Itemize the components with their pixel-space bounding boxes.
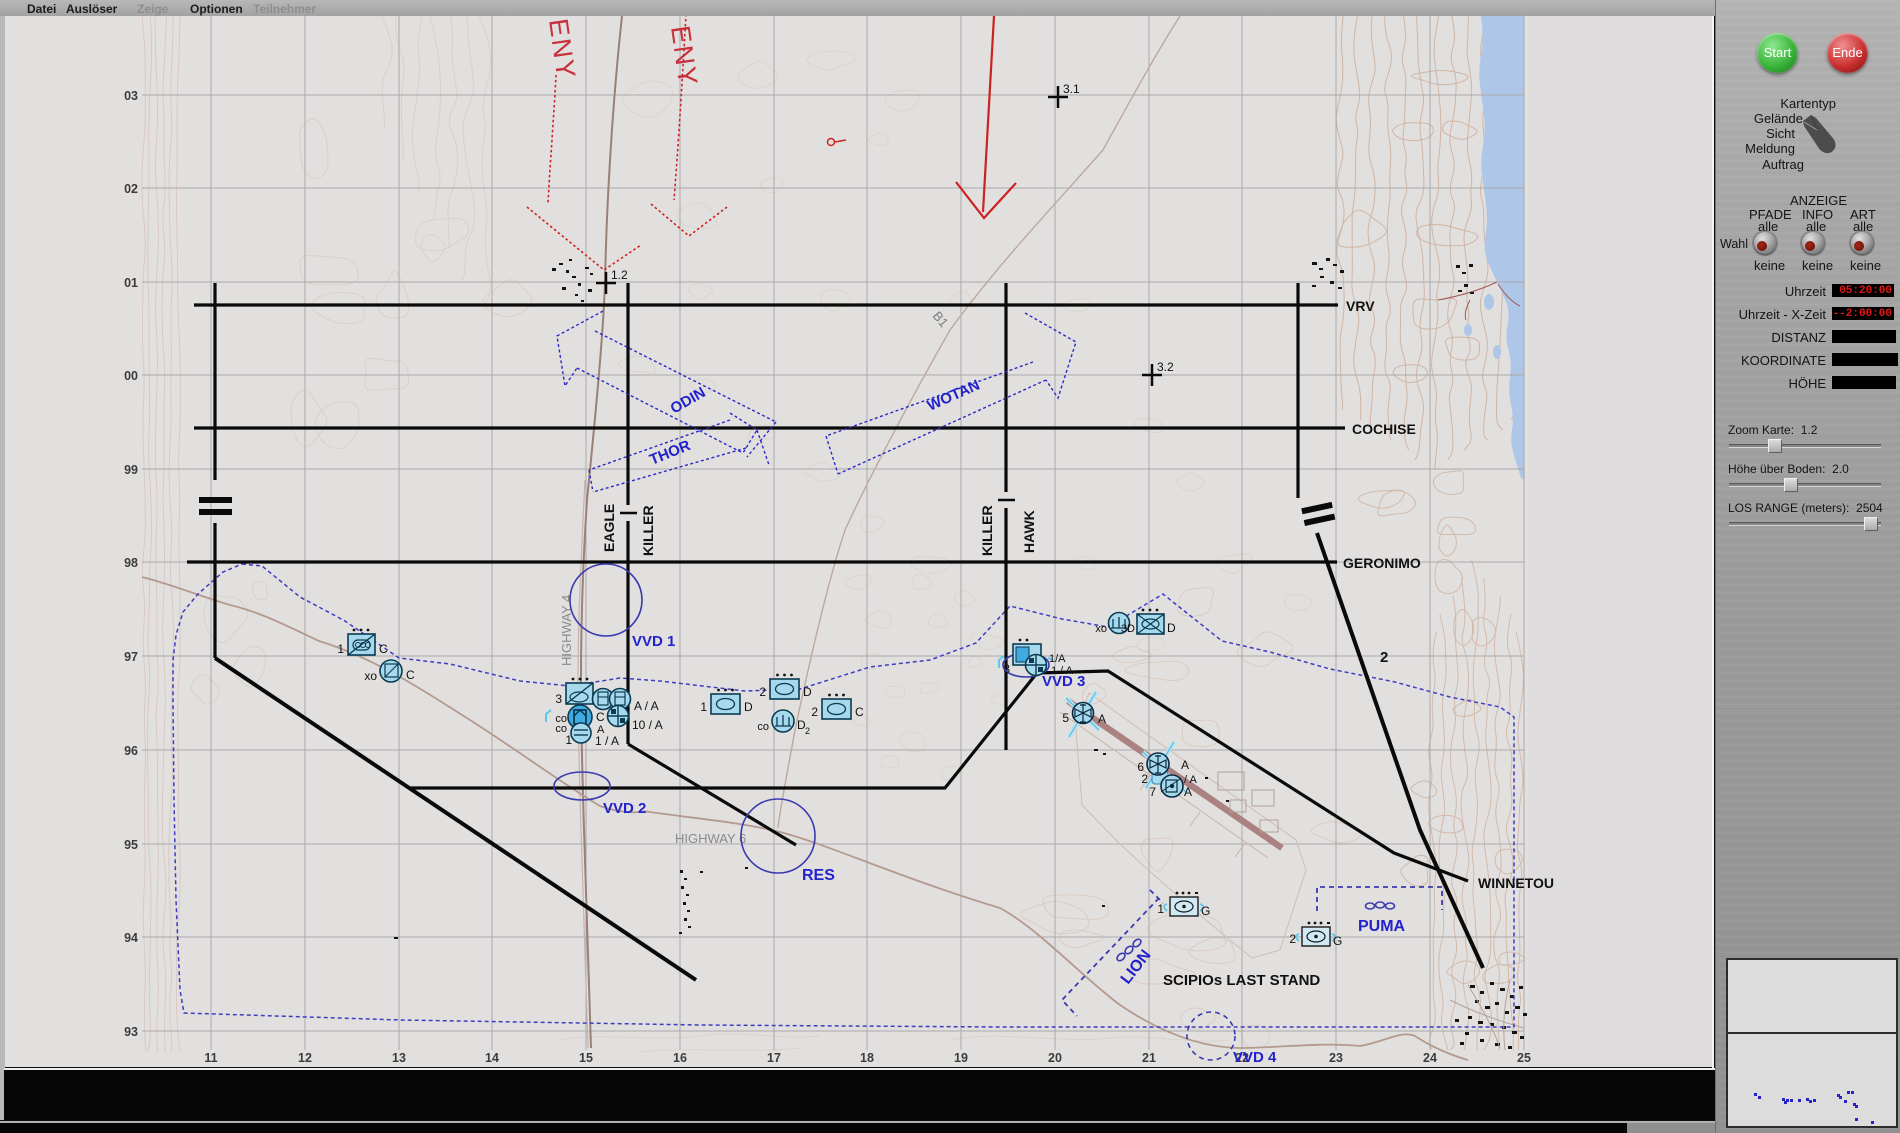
svg-text:2: 2	[805, 726, 810, 736]
svg-text:A: A	[1098, 712, 1106, 726]
svg-text:COCHISE: COCHISE	[1352, 421, 1416, 437]
svg-text:xo: xo	[364, 669, 377, 683]
svg-text:2: 2	[1141, 772, 1148, 786]
svg-text:C: C	[596, 710, 605, 724]
svg-text:25: 25	[1517, 1051, 1531, 1065]
svg-text:VVD 2: VVD 2	[603, 800, 646, 817]
svg-text:VRV: VRV	[1346, 298, 1375, 314]
svg-text:1: 1	[565, 733, 572, 747]
svg-text:3.2: 3.2	[1157, 360, 1174, 374]
svg-text:D: D	[1167, 621, 1176, 635]
svg-text:3: 3	[555, 692, 562, 706]
svg-text:A / A: A / A	[634, 699, 659, 713]
svg-text:3D: 3D	[1121, 623, 1135, 635]
svg-text:xo: xo	[1095, 623, 1107, 635]
svg-text:C: C	[406, 668, 415, 682]
svg-text:96: 96	[124, 744, 138, 758]
svg-text:98: 98	[124, 556, 138, 570]
svg-text:G: G	[1333, 934, 1342, 948]
svg-text:C: C	[379, 642, 388, 656]
svg-text:1: 1	[1157, 902, 1164, 916]
svg-text:15: 15	[579, 1051, 593, 1065]
svg-text:93: 93	[124, 1025, 138, 1039]
svg-text:1 / A: 1 / A	[1051, 665, 1074, 677]
svg-text:GERONIMO: GERONIMO	[1343, 555, 1421, 571]
svg-text:G: G	[1201, 904, 1210, 918]
svg-text:12: 12	[298, 1051, 312, 1065]
svg-text:HIGHWAY 6: HIGHWAY 6	[675, 831, 746, 846]
svg-text:EAGLE: EAGLE	[601, 504, 617, 552]
svg-text:C: C	[855, 705, 864, 719]
svg-text:1: 1	[337, 642, 344, 656]
svg-text:99: 99	[124, 463, 138, 477]
svg-text:PUMA: PUMA	[1358, 918, 1406, 935]
svg-text:RES: RES	[802, 867, 835, 884]
svg-text:3: 3	[1003, 662, 1010, 676]
svg-text:20: 20	[1048, 1051, 1062, 1065]
svg-text:co: co	[757, 721, 769, 733]
svg-text:5: 5	[1062, 711, 1069, 725]
svg-text:94: 94	[124, 931, 138, 945]
svg-text:03: 03	[124, 89, 138, 103]
svg-text:D: D	[803, 685, 812, 699]
svg-text:2: 2	[1289, 932, 1296, 946]
svg-text:SCIPIOs LAST STAND: SCIPIOs LAST STAND	[1163, 972, 1320, 989]
svg-text:16: 16	[673, 1051, 687, 1065]
svg-text:1.2: 1.2	[611, 268, 628, 282]
svg-text:2: 2	[1380, 649, 1388, 666]
svg-text:VVD 4: VVD 4	[1233, 1049, 1277, 1066]
svg-text:D: D	[744, 700, 753, 714]
svg-text:VVD 1: VVD 1	[632, 633, 675, 650]
svg-text:95: 95	[124, 838, 138, 852]
svg-text:02: 02	[124, 182, 138, 196]
svg-text:00: 00	[124, 369, 138, 383]
svg-text:24: 24	[1423, 1051, 1437, 1065]
svg-text:10 / A: 10 / A	[632, 718, 663, 732]
svg-text:1/A: 1/A	[1049, 653, 1066, 665]
svg-text:11: 11	[204, 1051, 217, 1065]
svg-text:97: 97	[124, 650, 138, 664]
svg-text:A: A	[1184, 785, 1192, 799]
svg-text:18: 18	[860, 1051, 874, 1065]
svg-text:2: 2	[811, 705, 818, 719]
svg-text:19: 19	[954, 1051, 968, 1065]
svg-text:13: 13	[392, 1051, 406, 1065]
svg-text:A: A	[1181, 758, 1189, 772]
svg-text:1: 1	[700, 700, 707, 714]
svg-text:HIGHWAY 4: HIGHWAY 4	[559, 595, 574, 666]
svg-text:KILLER: KILLER	[979, 505, 995, 556]
svg-text:3.1: 3.1	[1063, 82, 1080, 96]
svg-text:17: 17	[767, 1051, 781, 1065]
svg-text:2: 2	[759, 685, 766, 699]
svg-text:01: 01	[124, 276, 138, 290]
svg-text:HAWK: HAWK	[1021, 510, 1037, 553]
svg-text:1 / A: 1 / A	[595, 734, 619, 748]
svg-text:23: 23	[1329, 1051, 1343, 1065]
svg-text:14: 14	[485, 1051, 499, 1065]
svg-text:21: 21	[1142, 1051, 1156, 1065]
svg-text:KILLER: KILLER	[640, 505, 656, 556]
svg-text:WINNETOU: WINNETOU	[1478, 875, 1554, 891]
svg-text:7: 7	[1149, 785, 1156, 799]
